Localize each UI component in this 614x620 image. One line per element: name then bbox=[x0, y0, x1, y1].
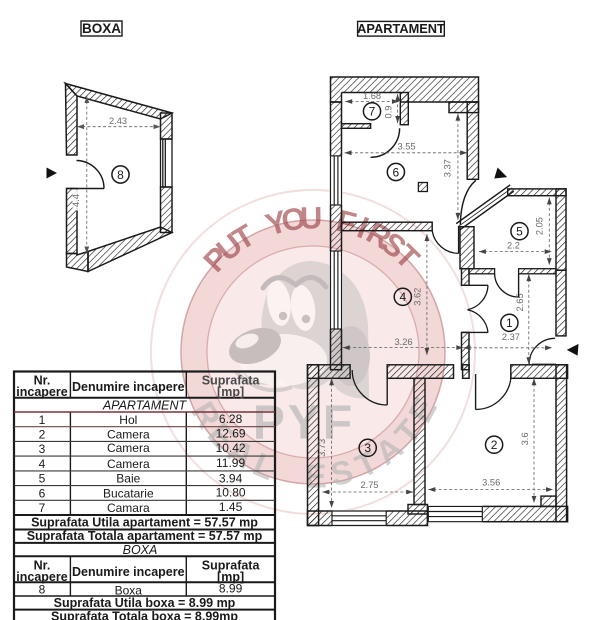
svg-text:3.55: 3.55 bbox=[397, 142, 415, 152]
svg-text:12.69: 12.69 bbox=[216, 427, 246, 441]
svg-text:4.4: 4.4 bbox=[71, 194, 81, 207]
svg-text:8: 8 bbox=[39, 583, 46, 597]
svg-text:7: 7 bbox=[39, 501, 46, 515]
svg-text:APARTAMENT: APARTAMENT bbox=[357, 21, 445, 36]
svg-text:6: 6 bbox=[39, 486, 46, 500]
svg-text:1.68: 1.68 bbox=[363, 91, 381, 101]
svg-text:APARTAMENT: APARTAMENT bbox=[102, 399, 188, 413]
svg-text:Camera: Camera bbox=[107, 441, 150, 455]
svg-text:Denumire incapere: Denumire incapere bbox=[72, 565, 185, 579]
svg-text:Camera: Camera bbox=[107, 428, 150, 442]
svg-text:2: 2 bbox=[491, 438, 498, 452]
svg-text:0.9: 0.9 bbox=[384, 106, 394, 119]
svg-text:3.26: 3.26 bbox=[394, 337, 412, 347]
svg-text:Denumire incapere: Denumire incapere bbox=[72, 380, 185, 394]
svg-text:6: 6 bbox=[393, 165, 400, 179]
svg-text:10.42: 10.42 bbox=[216, 441, 246, 455]
svg-text:BOXA: BOXA bbox=[82, 21, 121, 36]
svg-text:U: U bbox=[300, 200, 323, 235]
svg-text:3.62: 3.62 bbox=[413, 288, 423, 306]
svg-text:Camera: Camera bbox=[107, 457, 150, 471]
svg-text:[mp]: [mp] bbox=[217, 385, 244, 399]
svg-text:Suprafata Totala boxa = 8.99m: Suprafata Totala boxa = 8.99mp bbox=[51, 609, 238, 620]
svg-text:3.94: 3.94 bbox=[219, 472, 243, 486]
svg-text:2.43: 2.43 bbox=[109, 116, 127, 126]
svg-text:Camara: Camara bbox=[107, 501, 150, 515]
svg-text:3.73: 3.73 bbox=[317, 439, 327, 457]
svg-text:8: 8 bbox=[117, 168, 124, 182]
svg-text:3: 3 bbox=[39, 442, 46, 456]
svg-text:4: 4 bbox=[399, 290, 406, 304]
svg-text:Baie: Baie bbox=[116, 472, 140, 486]
svg-text:2.37: 2.37 bbox=[502, 332, 520, 342]
svg-text:2.65: 2.65 bbox=[515, 293, 525, 311]
svg-text:2.05: 2.05 bbox=[534, 217, 544, 235]
svg-text:7: 7 bbox=[369, 105, 376, 119]
svg-text:1: 1 bbox=[506, 316, 513, 330]
svg-text:4: 4 bbox=[39, 457, 46, 471]
svg-text:BOXA: BOXA bbox=[123, 543, 158, 557]
svg-text:Hol: Hol bbox=[119, 413, 137, 427]
svg-text:10.80: 10.80 bbox=[216, 485, 246, 499]
svg-text:Suprafata Utila apartament = 5: Suprafata Utila apartament = 57.57 mp bbox=[31, 516, 258, 530]
svg-text:Suprafata Totala apartament =: Suprafata Totala apartament = 57.57 mp bbox=[27, 529, 263, 543]
svg-text:2.75: 2.75 bbox=[360, 480, 378, 490]
svg-text:3.56: 3.56 bbox=[482, 477, 500, 487]
svg-text:5: 5 bbox=[516, 225, 523, 239]
svg-text:1.45: 1.45 bbox=[219, 500, 243, 514]
svg-text:1: 1 bbox=[39, 413, 46, 427]
svg-text:incapere: incapere bbox=[16, 385, 67, 399]
svg-text:6.28: 6.28 bbox=[219, 412, 243, 426]
svg-text:2: 2 bbox=[39, 428, 46, 442]
svg-text:11.99: 11.99 bbox=[216, 456, 245, 470]
svg-text:Suprafata Utila boxa = 8.99 mp: Suprafata Utila boxa = 8.99 mp bbox=[54, 596, 236, 610]
svg-text:3.37: 3.37 bbox=[443, 159, 453, 177]
svg-text:3: 3 bbox=[364, 441, 371, 455]
svg-text:5: 5 bbox=[39, 472, 46, 486]
svg-text:Bucatarie: Bucatarie bbox=[103, 486, 154, 500]
svg-text:3.6: 3.6 bbox=[520, 432, 530, 445]
svg-text:2.2: 2.2 bbox=[507, 241, 520, 251]
svg-text:8.99: 8.99 bbox=[219, 582, 243, 596]
